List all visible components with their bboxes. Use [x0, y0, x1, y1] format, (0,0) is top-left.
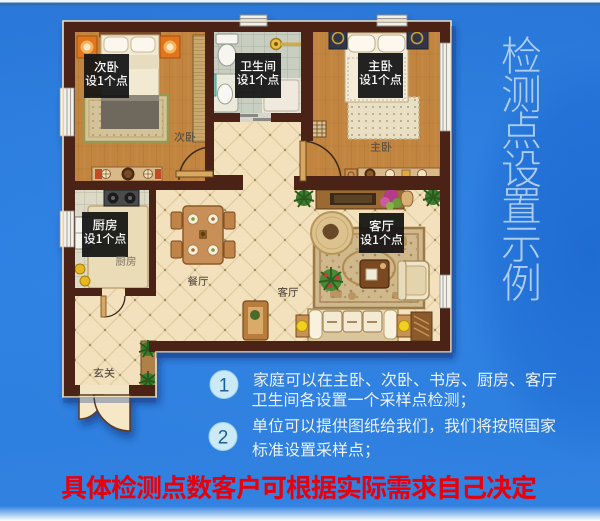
- svg-text:1: 1: [219, 376, 230, 397]
- svg-text:2: 2: [218, 428, 229, 449]
